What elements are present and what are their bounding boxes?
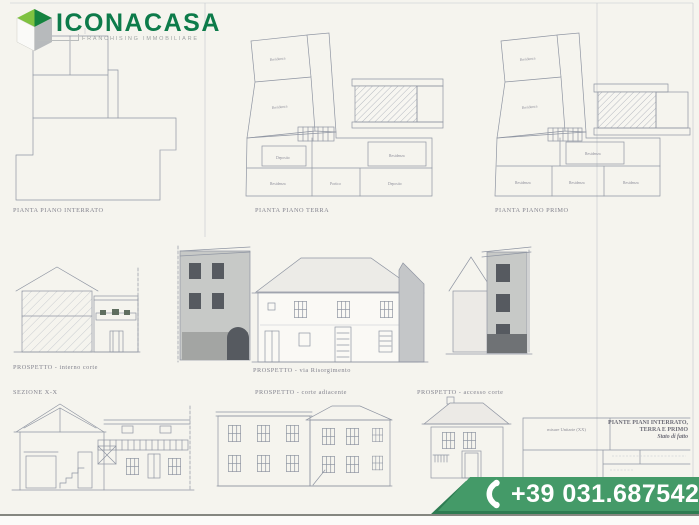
room-label: Portico	[330, 182, 341, 186]
architectural-drawings: Residenza Residenza Deposito Residenza R…	[0, 0, 699, 525]
title-block-line2: TERRA E PRIMO	[606, 427, 688, 434]
caption-plan-interrato: PIANTA PIANO INTERRATO	[13, 207, 104, 214]
caption-prospetto-via-risorgimento: PROSPETTO - via Risorgimento	[253, 367, 351, 374]
caption-prospetto-accesso-corte: PROSPETTO - accesso corte	[417, 389, 503, 396]
section-xx	[12, 404, 194, 490]
logo-divider-tick	[78, 34, 79, 41]
room-label: Residenza	[389, 154, 405, 158]
plan-primo: Residenza Residenza Residenza Residenza …	[495, 33, 690, 196]
room-label: Residenza	[515, 181, 531, 185]
plan-terra: Residenza Residenza Deposito Residenza R…	[246, 33, 443, 196]
caption-prospetto-corte-adiacente: PROSPETTO - corte adiacente	[255, 389, 347, 396]
elevation-accesso-corte	[422, 397, 511, 478]
room-label: Residenza	[522, 104, 538, 110]
caption-plan-terra: PIANTA PIANO TERRA	[255, 207, 329, 214]
room-label: Deposito	[276, 156, 290, 160]
caption-sezione: SEZIONE X-X	[13, 389, 58, 396]
title-block-line1: PIANTE PIANI INTERRATO,	[606, 420, 688, 427]
room-label: Residenza	[520, 56, 536, 62]
title-block-title: PIANTE PIANI INTERRATO, TERRA E PRIMO St…	[606, 420, 688, 441]
listing-image: Residenza Residenza Deposito Residenza R…	[0, 0, 699, 525]
title-block-subtitle: Stato di fatto	[606, 434, 688, 441]
elevation-via-risorgimento	[178, 246, 428, 362]
room-label: Residenza	[569, 181, 585, 185]
plan-interrato	[16, 28, 176, 200]
caption-prospetto-interno-corte: PROSPETTO - interno corte	[13, 364, 98, 371]
logo-divider	[38, 40, 78, 41]
logo-cube-icon	[16, 8, 53, 52]
title-block-note: misure Unitarie (XX)	[525, 427, 608, 432]
brand-name: ICONACASA	[56, 9, 221, 38]
room-label: Residenza	[623, 181, 639, 185]
sheet-bottom-rule	[0, 514, 699, 516]
room-label: Residenza	[270, 56, 286, 62]
elevation-corte-adiacente	[216, 406, 392, 486]
elevation-interno-corte	[14, 267, 140, 352]
room-label: Deposito	[388, 182, 402, 186]
phone-icon	[480, 479, 502, 509]
room-label: Residenza	[585, 152, 601, 156]
phone-number: +39 031.6875427	[511, 480, 699, 509]
room-label: Residenza	[270, 182, 286, 186]
room-label: Residenza	[272, 104, 288, 110]
brand-tagline: FRANCHISING IMMOBILIARE	[82, 36, 199, 42]
phone-banner-content: +39 031.6875427	[480, 479, 699, 509]
caption-plan-primo: PIANTA PIANO PRIMO	[495, 207, 569, 214]
elevation-right-building	[446, 247, 532, 354]
phone-banner: +39 031.6875427	[438, 477, 699, 511]
